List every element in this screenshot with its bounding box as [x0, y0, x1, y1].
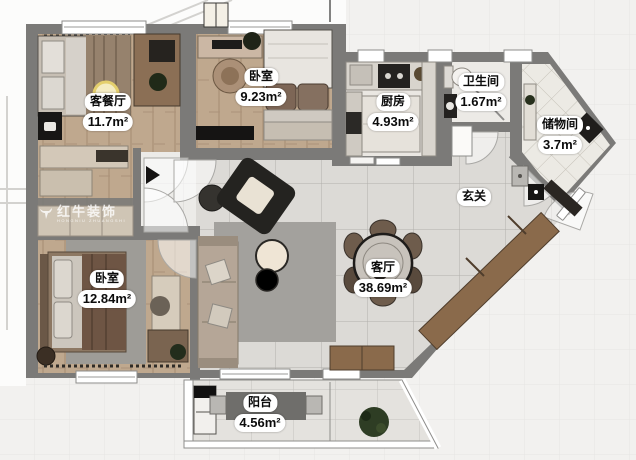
oven [346, 112, 362, 134]
sofa-arm [198, 236, 238, 246]
monitor [212, 40, 242, 49]
watermark-cabinet [38, 206, 133, 236]
chair [150, 296, 170, 316]
coffee-table [256, 240, 288, 272]
plant [149, 73, 167, 91]
side-stool [306, 396, 322, 414]
bed-bench [264, 122, 332, 140]
kitchen-slide-door [350, 157, 374, 164]
sofa [198, 242, 238, 364]
bench [96, 150, 128, 162]
pillow [54, 260, 72, 298]
balcony-frame-left [184, 380, 193, 448]
side-stool [210, 396, 226, 414]
plant [243, 32, 261, 50]
balcony-frame-bottom [184, 441, 434, 448]
sofa-arm [198, 358, 238, 368]
shelf [524, 84, 536, 140]
pantry-column [422, 62, 436, 156]
dining-set [344, 220, 422, 306]
nightstand [37, 347, 55, 365]
window-bedroom-bottom [76, 371, 137, 383]
plant-detail [361, 411, 371, 421]
kitchen-furniture [346, 62, 436, 156]
pillow [54, 302, 72, 338]
chair-seat [221, 67, 239, 85]
balcony [184, 380, 438, 448]
window-kitchen [358, 50, 532, 62]
headboard [40, 254, 48, 350]
bed [264, 30, 332, 88]
stove [378, 64, 410, 88]
pillow [42, 41, 64, 73]
floor-plan: 客餐厅 11.7m² 卧室 9.23m² 厨房 4.93m² 卫生间 1.67m… [0, 0, 636, 460]
duvet [82, 254, 126, 350]
knob [534, 190, 538, 194]
lamp-glow [94, 82, 118, 94]
outdoor-mat [226, 392, 306, 420]
burner [385, 73, 391, 79]
pillow [266, 84, 296, 110]
bed-foot [264, 110, 332, 122]
floor-plan-drawing [0, 0, 636, 460]
bathroom-door-leaf [452, 126, 472, 156]
plant [525, 95, 535, 105]
window-top-left [62, 21, 146, 34]
pillow [42, 77, 64, 109]
plant [359, 407, 389, 437]
tv-stand [196, 126, 254, 140]
duvet [86, 35, 130, 115]
basin [446, 102, 454, 110]
coffee-table-small [256, 269, 278, 291]
sink [350, 65, 372, 85]
pillow [298, 84, 328, 110]
cabinet [40, 170, 92, 196]
kitchen-slide-door-2 [376, 158, 400, 165]
wardrobe-shelf [149, 40, 175, 62]
toilet [452, 68, 472, 86]
device [44, 122, 56, 131]
knob [586, 126, 590, 130]
knob [518, 174, 522, 178]
centerpiece [372, 264, 388, 280]
throw-pillow [208, 304, 232, 328]
plant-detail [376, 423, 386, 433]
plant [170, 344, 186, 360]
burner [397, 73, 403, 79]
